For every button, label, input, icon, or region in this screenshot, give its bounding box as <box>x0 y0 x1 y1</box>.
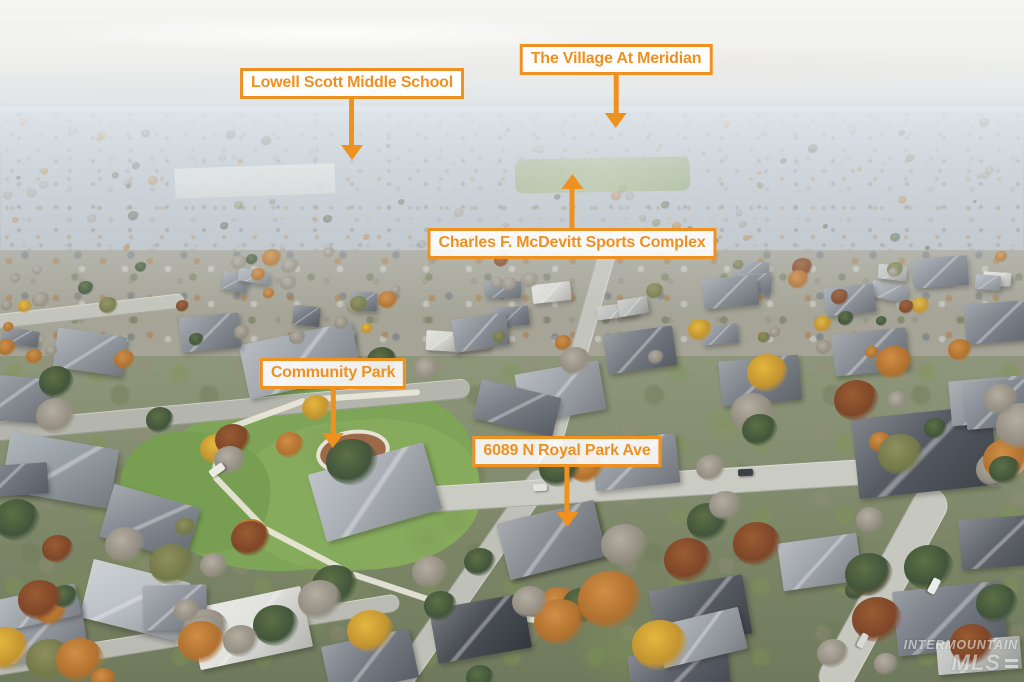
tree <box>874 653 898 674</box>
tree <box>948 339 972 361</box>
tree <box>128 211 139 221</box>
tree <box>878 434 923 474</box>
tree <box>280 247 285 252</box>
arrow-shaft <box>564 467 569 512</box>
arrow-up-icon <box>561 174 583 189</box>
tree <box>378 291 398 309</box>
tree <box>112 172 119 178</box>
tree <box>852 597 902 642</box>
arrow-shaft <box>349 99 354 145</box>
tree <box>87 214 97 223</box>
tree <box>16 176 21 180</box>
tree <box>876 316 887 326</box>
watermark-bars-icon <box>1005 659 1018 668</box>
tree <box>535 145 545 154</box>
tree <box>253 605 299 646</box>
tree <box>876 346 913 379</box>
tree <box>493 331 506 343</box>
tree <box>696 455 726 482</box>
tree <box>742 414 778 446</box>
tree <box>148 176 158 185</box>
tree <box>56 638 104 681</box>
house-roof <box>0 462 49 499</box>
house-roof <box>964 300 1024 345</box>
tree <box>502 277 517 291</box>
house-roof <box>912 255 969 289</box>
tree <box>412 556 448 588</box>
tree <box>976 173 983 179</box>
car <box>737 468 752 476</box>
tree <box>146 407 174 432</box>
tree <box>845 553 893 596</box>
tree <box>45 345 58 357</box>
watermark-line2: MLS <box>952 652 1001 674</box>
tree <box>323 247 335 258</box>
tree <box>99 297 118 314</box>
tree <box>632 620 688 670</box>
callout-label: 6089 N Royal Park Ave <box>472 436 661 467</box>
tree <box>281 258 298 273</box>
tree <box>464 548 496 577</box>
tree <box>350 296 368 312</box>
tree <box>989 456 1021 485</box>
house-roof <box>701 275 758 310</box>
callout-label: Community Park <box>260 358 406 389</box>
tree <box>231 521 269 556</box>
house-roof <box>958 514 1024 570</box>
tree <box>979 118 990 128</box>
tree <box>857 167 862 171</box>
tree <box>312 217 317 221</box>
tree <box>924 418 947 439</box>
callout-property-address: 6089 N Royal Park Ave <box>472 436 661 527</box>
tree <box>231 255 247 270</box>
tree <box>298 580 342 620</box>
tree <box>334 316 349 329</box>
callout-lowell-scott-middle-school: Lowell Scott Middle School <box>240 68 464 160</box>
house-roof <box>974 274 1001 291</box>
tree <box>890 233 900 242</box>
tree <box>78 281 94 295</box>
tree <box>323 215 332 223</box>
tree <box>466 665 494 682</box>
tree <box>114 350 135 369</box>
tree <box>19 118 28 126</box>
tree <box>178 621 225 663</box>
callout-label: Charles F. McDevitt Sports Complex <box>427 228 716 259</box>
arrow-down-icon <box>341 145 363 160</box>
tree <box>701 151 705 155</box>
tree <box>995 251 1008 262</box>
tree <box>174 599 200 623</box>
tree <box>141 129 151 138</box>
arrow-down-icon <box>605 113 627 128</box>
tree <box>176 300 189 312</box>
tree <box>10 274 21 284</box>
callout-label: Lowell Scott Middle School <box>240 68 464 99</box>
tree <box>414 357 440 381</box>
tree <box>26 349 43 364</box>
tree <box>664 538 712 581</box>
tree <box>898 130 905 137</box>
tree <box>12 217 19 223</box>
tree <box>688 319 712 341</box>
arrow-shaft <box>614 75 619 113</box>
tree <box>808 144 819 154</box>
mls-watermark: INTERMOUNTAIN MLS <box>904 639 1018 675</box>
tree <box>149 544 195 585</box>
tree <box>135 262 146 272</box>
tree <box>739 221 747 228</box>
tree <box>68 125 79 135</box>
tree <box>512 586 548 618</box>
tree <box>226 130 236 139</box>
tree <box>132 162 140 169</box>
tree <box>578 571 642 629</box>
callout-charles-f-mcdevitt-sports-complex: Charles F. McDevitt Sports Complex <box>427 174 716 259</box>
tree <box>105 527 145 563</box>
tree <box>743 235 750 241</box>
tree <box>834 380 879 421</box>
tree <box>417 240 427 249</box>
tree <box>648 350 663 364</box>
tree <box>985 166 995 175</box>
tree <box>280 275 297 291</box>
tree <box>898 196 907 204</box>
tree <box>780 158 787 164</box>
tree <box>823 224 828 228</box>
tree <box>976 584 1018 622</box>
tree <box>347 610 394 652</box>
arrow-shaft <box>569 189 574 228</box>
school-buildings <box>175 163 336 199</box>
tree <box>601 524 647 566</box>
tree <box>39 181 48 189</box>
tree <box>363 234 370 240</box>
tree <box>848 125 858 134</box>
callout-the-village-at-meridian: The Village At Meridian <box>520 44 713 128</box>
arrow-down-icon <box>322 433 344 448</box>
house-roof <box>179 312 242 352</box>
tree <box>758 332 770 343</box>
tree <box>42 535 74 564</box>
callout-label: The Village At Meridian <box>520 44 713 75</box>
tree <box>424 591 457 620</box>
tree <box>398 199 405 205</box>
tree <box>126 184 131 188</box>
tree <box>831 289 849 305</box>
callout-community-park: Community Park <box>260 358 406 448</box>
tree <box>123 245 130 251</box>
aerial-photo: Lowell Scott Middle School The Village A… <box>0 0 1024 682</box>
tree <box>262 249 282 267</box>
tree <box>906 154 915 162</box>
tree <box>521 272 539 288</box>
tree <box>39 366 74 398</box>
tree <box>18 580 62 620</box>
tree <box>234 201 244 210</box>
tree <box>856 507 884 532</box>
tree <box>234 325 251 340</box>
house-roof <box>292 304 321 327</box>
tree <box>36 398 76 434</box>
tree <box>757 171 762 175</box>
tree <box>838 311 854 326</box>
tree <box>189 333 204 346</box>
tree <box>814 316 831 332</box>
tree <box>887 391 908 410</box>
tree <box>925 246 930 250</box>
sky <box>0 0 1024 122</box>
tree <box>361 323 373 334</box>
arrow-down-icon <box>556 512 578 527</box>
tree <box>788 270 809 289</box>
tree <box>733 522 781 565</box>
arrow-shaft <box>331 389 336 433</box>
tree <box>816 340 832 354</box>
